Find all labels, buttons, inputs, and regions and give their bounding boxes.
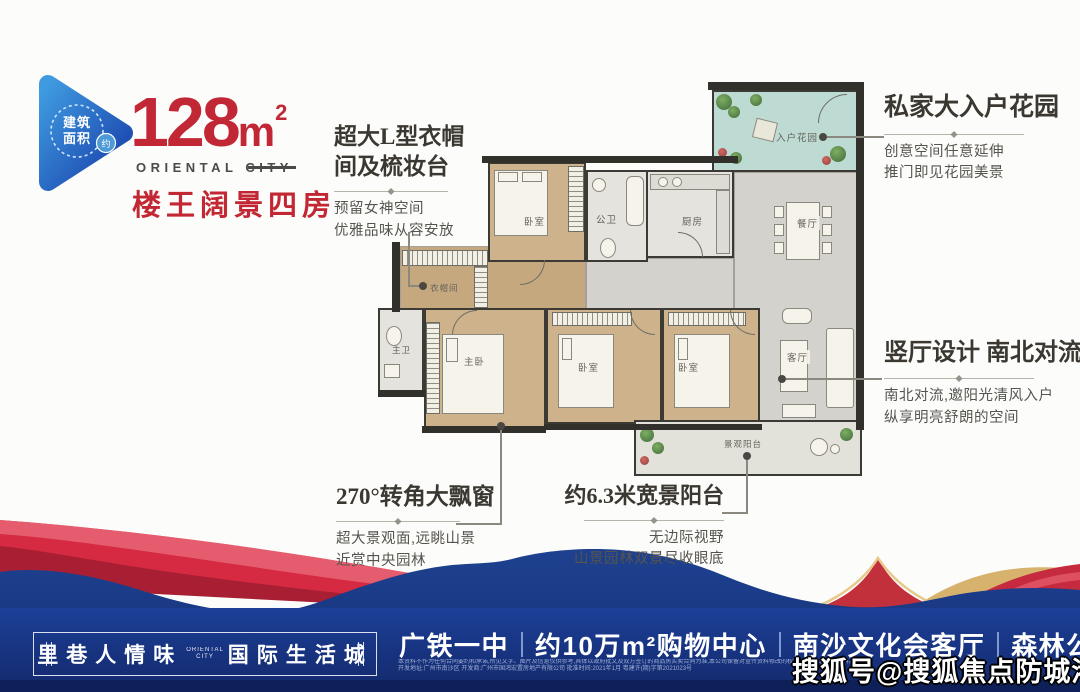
kitchen-counter-side (716, 190, 730, 254)
label-closet: 衣帽间 (430, 282, 459, 294)
annotation-closet-line2: 优雅品味从容安放 (334, 221, 486, 243)
annotation-balcony-line2: 山景园林双景尽收眼底 (550, 549, 724, 571)
balcony-stool (830, 444, 840, 454)
svg-text:约: 约 (101, 138, 110, 149)
label-kitchen: 厨房 (682, 214, 703, 228)
page-title: 楼王阔景四房 (132, 182, 336, 224)
annotation-closet: 超大L型衣帽间及梳妆台 预留女神空间 优雅品味从容安放 (334, 122, 486, 242)
leader-garden (827, 136, 884, 138)
divider (884, 134, 1024, 135)
annotation-baywindow-line2: 近赏中央园林 (336, 551, 508, 573)
bedroom-mid-wardrobe (552, 312, 632, 326)
leader-dot-closet (419, 282, 427, 290)
annotation-baywindow-title: 270°转角大飘窗 (336, 482, 508, 512)
annotation-garden: 私家大入户花园 创意空间任意延伸 推门即见花园美景 (884, 92, 1080, 185)
annotation-baywindow-line1: 超大景观面,远眺山景 (336, 529, 508, 551)
pavilion-eaves-icon (798, 558, 958, 613)
label-master-bath: 主卫 (392, 344, 411, 356)
coffee-table (780, 340, 808, 392)
annotation-baywindow: 270°转角大飘窗 超大景观面,远眺山景 近赏中央园林 (336, 482, 508, 572)
area-figure: 128m2 (130, 82, 287, 162)
label-master-bed: 主卧 (464, 354, 485, 368)
gold-dune-icon (330, 580, 630, 618)
master-bed-wardrobe (426, 322, 440, 414)
divider (336, 521, 460, 522)
sink (592, 178, 606, 192)
annotation-living-line1: 南北对流,邀阳光清风入户 (884, 386, 1080, 408)
annotation-balcony: 约6.3米宽景阳台 无边际视野 山景园林双景尽收眼底 (550, 482, 724, 571)
leader-balcony-v (746, 460, 748, 514)
watermark: 搜狐号@搜狐焦点防城港站 (792, 650, 1080, 689)
chair (774, 242, 784, 254)
annotation-closet-line1: 预留女神空间 (334, 199, 486, 221)
toilet (600, 238, 616, 258)
stove-burner (658, 177, 668, 187)
area-superscript: 2 (275, 100, 287, 125)
area-number: 128 (130, 83, 238, 161)
slogan-box: 里巷人情味 ORIENTAL CITY 国际生活城 (33, 632, 377, 676)
slogan-left: 里巷人情味 (37, 639, 182, 669)
annotation-living-title: 竖厅设计 南北对流 (884, 338, 1080, 369)
svg-text:面积: 面积 (63, 131, 91, 146)
annotation-garden-title: 私家大入户花园 (884, 92, 1080, 125)
label-balcony: 景观阳台 (724, 438, 762, 450)
toilet (386, 326, 402, 346)
sink (384, 364, 400, 378)
building-area-logo: 建筑 面积 约 (32, 72, 138, 194)
chair (822, 242, 832, 254)
pavilion-roof-icon (798, 558, 958, 613)
chair (774, 206, 784, 218)
annotation-closet-title: 超大L型衣帽间及梳妆台 (334, 122, 486, 182)
area-unit: m (238, 108, 275, 155)
red-ribbon-right-icon (935, 564, 1080, 622)
label-living: 客厅 (785, 350, 810, 364)
chair (822, 224, 832, 236)
poster: 建筑 面积 约 128m2 ORIENTAL CITY 楼王阔景四房 超大L型衣… (0, 0, 1080, 692)
divider (584, 520, 724, 521)
closet-wardrobe-side (474, 266, 488, 308)
slogan-right: 国际生活城 (228, 639, 373, 669)
slogan-center: ORIENTAL CITY (186, 647, 224, 661)
label-bedroom-mid: 卧室 (578, 360, 599, 374)
foyer-zone (586, 258, 734, 310)
pillow (498, 172, 518, 182)
tv-bench (782, 404, 816, 418)
pillow (678, 338, 688, 360)
annotation-balcony-title: 约6.3米宽景阳台 (550, 482, 724, 511)
leader-dot-living (778, 375, 786, 383)
separator (779, 632, 781, 657)
label-entry-garden: 入户花园 (776, 130, 818, 144)
annotation-living-line2: 纵享明亮舒朗的空间 (884, 408, 1080, 430)
chair (822, 206, 832, 218)
amenity-school: 广铁一中 (399, 626, 509, 663)
closet-wardrobe (402, 250, 488, 266)
leader-balcony-h (722, 512, 748, 514)
annotation-living: 竖厅设计 南北对流 南北对流,邀阳光清风入户 纵享明亮舒朗的空间 (884, 338, 1080, 430)
slogan-frame-bar (358, 642, 364, 666)
bathtub (626, 176, 644, 226)
svg-text:建筑: 建筑 (63, 115, 91, 130)
annotation-garden-line1: 创意空间任意延伸 (884, 142, 1080, 164)
annotation-garden-line2: 推门即见花园美景 (884, 163, 1080, 185)
leader-living (786, 378, 882, 380)
label-bath-public: 公卫 (596, 212, 617, 226)
chair (774, 224, 784, 236)
divider (334, 191, 448, 192)
gold-dune-right-icon (900, 567, 1080, 620)
divider (884, 378, 1034, 379)
armchair (782, 308, 812, 324)
pillow (446, 338, 458, 362)
dining-table (786, 202, 820, 260)
annotation-balcony-line1: 无边际视野 (550, 528, 724, 550)
label-bedroom-top: 卧室 (524, 214, 545, 228)
separator (521, 632, 523, 657)
red-ribbon-highlight-icon (0, 520, 640, 608)
stove-burner (672, 177, 682, 187)
label-dining: 餐厅 (795, 216, 820, 230)
leader-dot-baywindow (497, 422, 505, 430)
leader-dot-balcony (743, 452, 751, 460)
red-ribbon-right-hl-icon (960, 572, 1080, 618)
subtitle-dash (248, 166, 296, 169)
slogan-frame-bar (46, 642, 52, 666)
sofa (826, 328, 854, 408)
label-bedroom-right: 卧室 (678, 360, 699, 374)
back-hill-icon (540, 585, 860, 622)
bedroom-top-wardrobe (568, 166, 584, 232)
pillow (562, 338, 572, 360)
pillow (522, 172, 542, 182)
amenity-mall: 约10万m²购物中心 (535, 626, 767, 663)
leader-dot-garden (819, 133, 827, 141)
balcony-table (810, 438, 828, 456)
